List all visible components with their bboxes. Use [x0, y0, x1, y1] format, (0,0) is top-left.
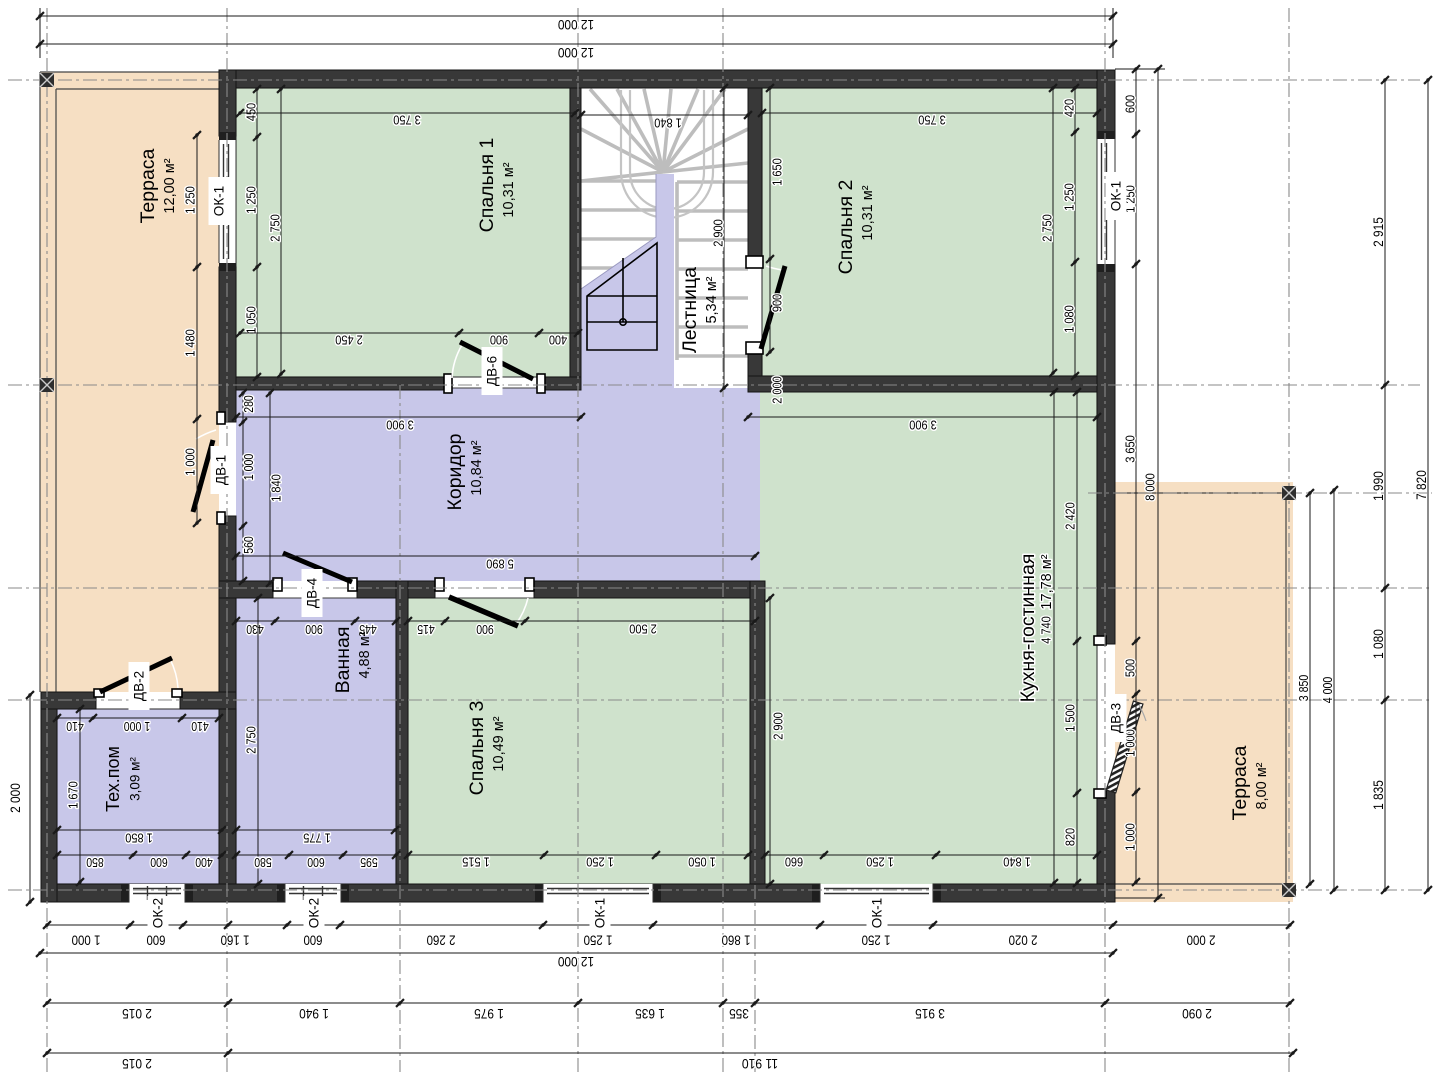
- svg-text:1 835: 1 835: [1371, 780, 1387, 810]
- svg-text:2 915: 2 915: [1371, 217, 1387, 247]
- svg-text:500: 500: [1123, 659, 1138, 677]
- svg-text:2 900: 2 900: [711, 219, 726, 247]
- svg-text:1 840: 1 840: [654, 116, 682, 131]
- svg-text:1 000: 1 000: [1123, 823, 1138, 851]
- svg-text:Тех.пом: Тех.пом: [103, 746, 123, 812]
- svg-text:2 000: 2 000: [1186, 933, 1215, 948]
- svg-text:3 915: 3 915: [915, 1005, 945, 1021]
- svg-text:2 900: 2 900: [771, 712, 786, 740]
- svg-text:Ванная: Ванная: [332, 627, 354, 694]
- svg-text:1 000: 1 000: [71, 933, 100, 948]
- svg-text:1 250: 1 250: [183, 186, 198, 214]
- svg-text:10,31 м²: 10,31 м²: [501, 162, 517, 217]
- svg-text:355: 355: [729, 1005, 749, 1021]
- svg-text:10,84 м²: 10,84 м²: [469, 440, 485, 495]
- svg-text:1 860: 1 860: [721, 933, 750, 948]
- svg-text:595: 595: [360, 855, 378, 869]
- svg-text:Лестница: Лестница: [679, 267, 701, 353]
- svg-text:1 250: 1 250: [583, 933, 612, 948]
- svg-text:Терраса: Терраса: [1229, 745, 1251, 820]
- svg-text:1 080: 1 080: [1062, 305, 1077, 333]
- svg-text:1 775: 1 775: [303, 831, 331, 846]
- svg-text:3 750: 3 750: [918, 113, 946, 128]
- svg-text:ДВ-2: ДВ-2: [132, 671, 147, 701]
- svg-text:12 000: 12 000: [558, 16, 594, 32]
- svg-text:1 840: 1 840: [269, 474, 284, 502]
- svg-text:2 420: 2 420: [1063, 502, 1078, 530]
- svg-text:1 250: 1 250: [866, 855, 894, 870]
- svg-text:1 000: 1 000: [183, 448, 198, 476]
- svg-text:1 500: 1 500: [1063, 704, 1078, 732]
- svg-text:1 160: 1 160: [220, 933, 249, 948]
- svg-text:2 015: 2 015: [122, 1055, 152, 1071]
- svg-text:415: 415: [417, 622, 435, 636]
- svg-text:1 480: 1 480: [183, 329, 198, 357]
- svg-text:ОК-1: ОК-1: [870, 898, 885, 928]
- svg-text:1 050: 1 050: [244, 306, 259, 334]
- svg-text:10,31 м²: 10,31 м²: [860, 185, 876, 240]
- svg-text:400: 400: [549, 333, 567, 348]
- svg-text:Кухня-гостинная: Кухня-гостинная: [1017, 554, 1039, 703]
- svg-text:1 650: 1 650: [770, 158, 785, 186]
- svg-text:2 020: 2 020: [1008, 933, 1037, 948]
- svg-text:1 940: 1 940: [299, 1005, 329, 1021]
- svg-text:900: 900: [770, 294, 785, 312]
- svg-text:ДВ-6: ДВ-6: [485, 356, 500, 386]
- svg-text:3 750: 3 750: [393, 113, 421, 128]
- svg-text:430: 430: [246, 622, 264, 636]
- svg-text:600: 600: [150, 855, 168, 869]
- svg-text:11 910: 11 910: [742, 1055, 778, 1071]
- svg-text:2 090: 2 090: [1182, 1005, 1212, 1021]
- svg-text:2 750: 2 750: [1040, 214, 1055, 242]
- svg-text:600: 600: [146, 933, 165, 948]
- svg-text:3 900: 3 900: [909, 418, 937, 433]
- svg-text:2 750: 2 750: [268, 214, 283, 242]
- svg-text:2 015: 2 015: [122, 1005, 152, 1021]
- svg-text:3 900: 3 900: [386, 418, 414, 433]
- svg-text:4,88 м²: 4,88 м²: [357, 631, 373, 678]
- svg-text:1 635: 1 635: [635, 1005, 665, 1021]
- svg-text:1 080: 1 080: [1371, 629, 1387, 659]
- svg-text:ОК-1: ОК-1: [1109, 181, 1124, 211]
- svg-text:ДВ-1: ДВ-1: [214, 455, 229, 485]
- svg-text:900: 900: [476, 622, 494, 636]
- svg-text:900: 900: [490, 333, 508, 348]
- svg-text:280: 280: [242, 395, 256, 413]
- svg-text:Коридор: Коридор: [444, 433, 466, 510]
- svg-text:8 000: 8 000: [1143, 473, 1158, 501]
- svg-text:ДВ-4: ДВ-4: [305, 577, 320, 608]
- svg-text:2 750: 2 750: [244, 726, 259, 754]
- svg-text:4 000: 4 000: [1321, 677, 1335, 703]
- svg-text:ОК-2: ОК-2: [307, 898, 322, 928]
- svg-text:1 250: 1 250: [586, 855, 614, 870]
- svg-text:1 250: 1 250: [1062, 183, 1077, 211]
- svg-text:450: 450: [244, 103, 259, 121]
- svg-text:400: 400: [195, 855, 213, 869]
- svg-text:1 670: 1 670: [66, 781, 81, 809]
- svg-text:1 250: 1 250: [861, 933, 890, 948]
- svg-text:660: 660: [785, 855, 803, 870]
- svg-text:1 515: 1 515: [462, 855, 490, 870]
- svg-text:Спальня 2: Спальня 2: [835, 180, 857, 275]
- svg-text:5,34 м²: 5,34 м²: [704, 276, 720, 323]
- svg-text:600: 600: [307, 855, 325, 869]
- svg-text:410: 410: [66, 719, 84, 733]
- svg-text:850: 850: [86, 855, 104, 869]
- svg-text:410: 410: [191, 719, 209, 733]
- svg-text:600: 600: [303, 933, 322, 948]
- svg-text:900: 900: [305, 622, 323, 636]
- svg-text:2 500: 2 500: [629, 622, 657, 637]
- svg-text:ОК-1: ОК-1: [593, 898, 608, 928]
- svg-text:8,00 м²: 8,00 м²: [1254, 762, 1270, 809]
- svg-text:17,78 м²: 17,78 м²: [1039, 554, 1055, 609]
- svg-text:1 250: 1 250: [244, 186, 259, 214]
- svg-text:1 050: 1 050: [688, 855, 716, 870]
- svg-text:Спальня 3: Спальня 3: [466, 701, 488, 796]
- svg-text:10,49 м²: 10,49 м²: [491, 716, 507, 771]
- svg-text:3 650: 3 650: [1123, 435, 1138, 463]
- svg-text:Спальня 1: Спальня 1: [476, 138, 498, 233]
- svg-text:12,00 м²: 12,00 м²: [162, 158, 178, 213]
- svg-text:1 850: 1 850: [125, 831, 153, 846]
- svg-text:ОК-2: ОК-2: [151, 898, 166, 928]
- svg-text:2 260: 2 260: [426, 933, 455, 948]
- svg-text:560: 560: [242, 536, 256, 554]
- svg-text:2 000: 2 000: [8, 783, 24, 813]
- svg-text:Терраса: Терраса: [137, 148, 159, 223]
- svg-text:2 450: 2 450: [335, 333, 363, 348]
- svg-text:1 975: 1 975: [474, 1005, 504, 1021]
- svg-text:4 740: 4 740: [1039, 616, 1054, 644]
- svg-text:3,09 м²: 3,09 м²: [128, 757, 143, 801]
- svg-text:2 000: 2 000: [770, 376, 785, 404]
- svg-text:12 000: 12 000: [558, 953, 594, 969]
- svg-text:ДВ-3: ДВ-3: [1109, 703, 1124, 733]
- svg-text:12 000: 12 000: [558, 44, 594, 60]
- svg-text:1 990: 1 990: [1371, 471, 1387, 501]
- svg-text:600: 600: [1123, 95, 1138, 113]
- svg-text:3 850: 3 850: [1297, 675, 1311, 701]
- svg-text:420: 420: [1062, 99, 1077, 117]
- svg-text:5 890: 5 890: [486, 557, 514, 572]
- svg-text:ОК-1: ОК-1: [212, 186, 227, 216]
- svg-text:1 840: 1 840: [1003, 855, 1031, 870]
- svg-text:7 820: 7 820: [1414, 470, 1430, 500]
- svg-text:1 000: 1 000: [124, 719, 150, 733]
- svg-text:1 000: 1 000: [242, 454, 256, 480]
- svg-text:820: 820: [1063, 828, 1078, 846]
- svg-text:580: 580: [254, 855, 272, 869]
